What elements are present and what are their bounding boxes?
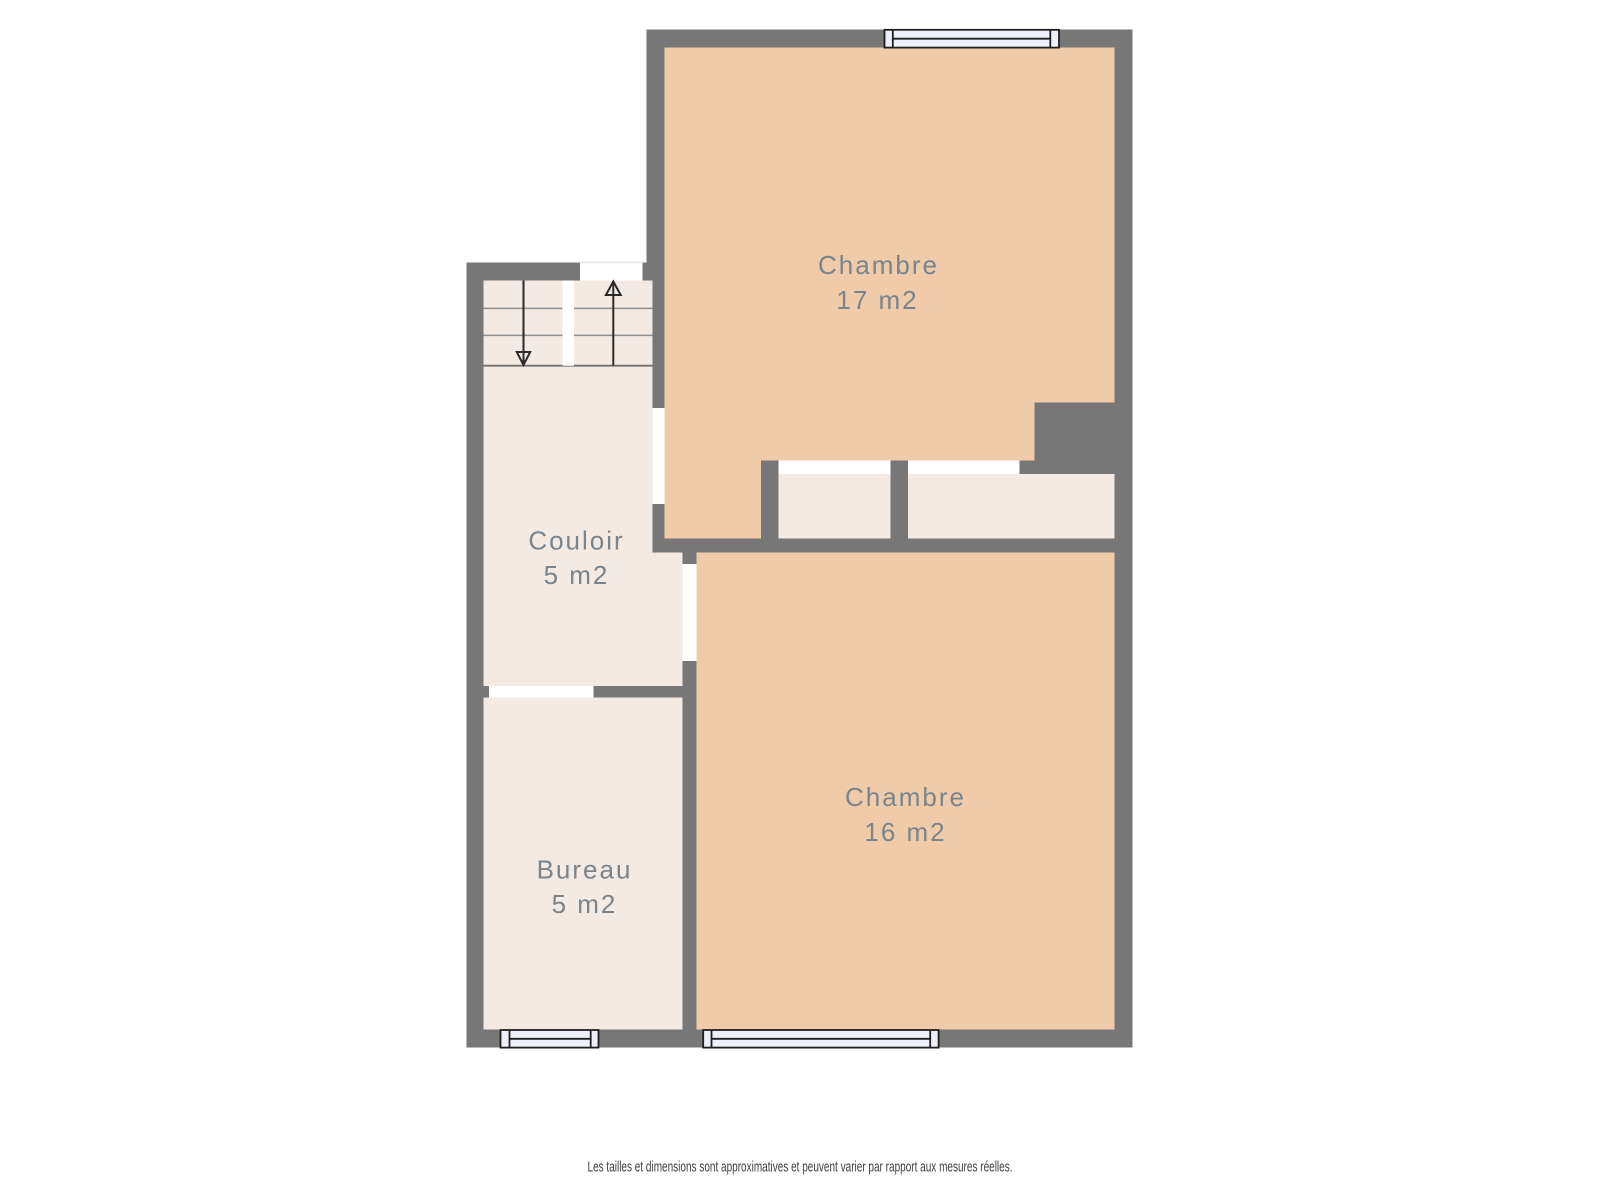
svg-text:17 m2: 17 m2 — [836, 285, 918, 315]
svg-text:5 m2: 5 m2 — [544, 560, 610, 590]
svg-text:Chambre: Chambre — [845, 782, 966, 812]
svg-text:5 m2: 5 m2 — [552, 889, 618, 919]
svg-text:Les tailles et dimensions sont: Les tailles et dimensions sont approxima… — [588, 1160, 1013, 1176]
svg-text:Couloir: Couloir — [528, 526, 624, 556]
svg-text:Chambre: Chambre — [818, 250, 939, 280]
svg-text:Bureau: Bureau — [537, 855, 633, 885]
svg-text:16 m2: 16 m2 — [864, 817, 946, 847]
